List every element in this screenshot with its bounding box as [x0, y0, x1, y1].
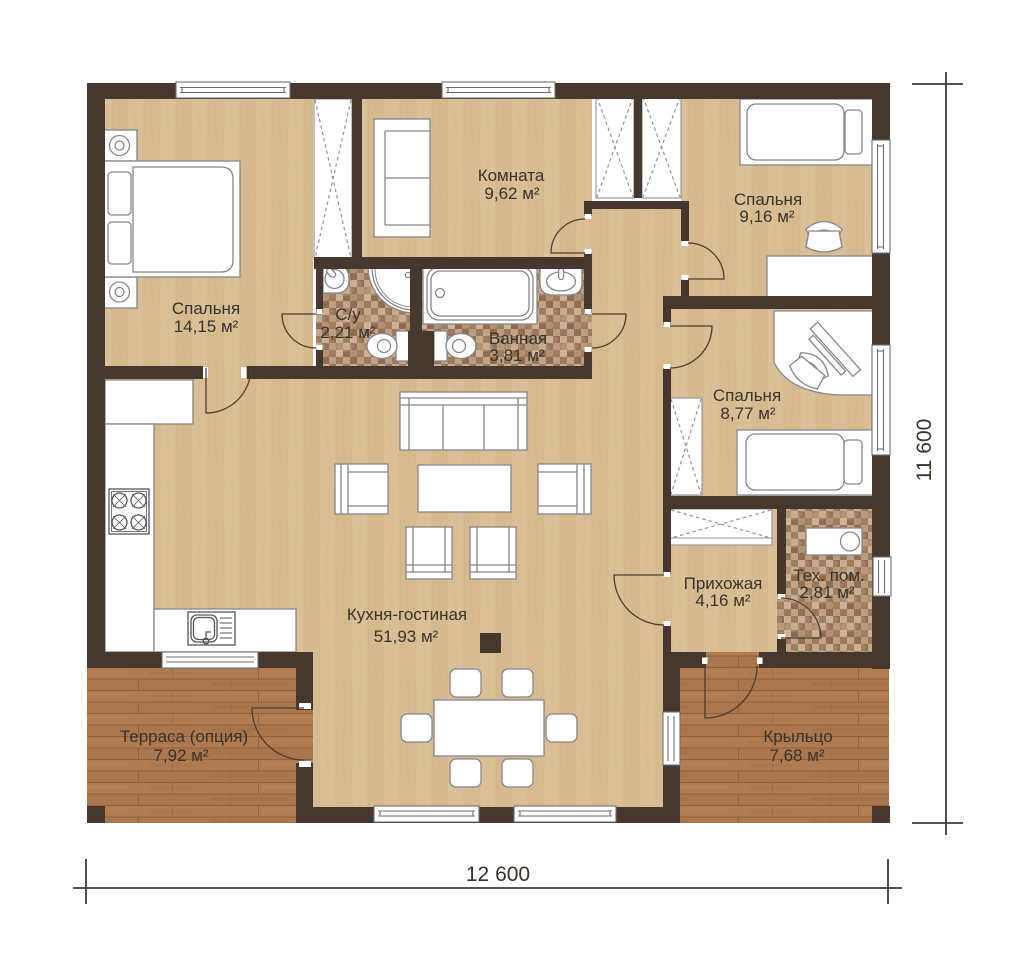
svg-text:Крыльцо: Крыльцо [763, 727, 832, 746]
svg-text:Спальня: Спальня [172, 299, 240, 318]
svg-text:7,68 м²: 7,68 м² [769, 746, 824, 765]
svg-text:14,15 м²: 14,15 м² [174, 317, 239, 336]
svg-text:51,93 м²: 51,93 м² [374, 627, 439, 646]
svg-text:4,16 м²: 4,16 м² [695, 591, 750, 610]
svg-text:8,77 м²: 8,77 м² [720, 404, 775, 423]
svg-text:12 600: 12 600 [466, 863, 530, 886]
svg-text:Терраса (опция): Терраса (опция) [120, 727, 248, 746]
svg-text:2,21 м²: 2,21 м² [320, 323, 375, 342]
svg-text:С/у: С/у [335, 305, 361, 324]
svg-text:Кухня-гостиная: Кухня-гостиная [347, 605, 467, 624]
svg-text:9,62 м²: 9,62 м² [484, 184, 539, 203]
svg-text:11 600: 11 600 [913, 419, 936, 482]
svg-text:9,16 м²: 9,16 м² [739, 207, 794, 226]
svg-text:Спальня: Спальня [713, 386, 781, 405]
svg-text:2,81 м²: 2,81 м² [799, 583, 854, 602]
svg-text:7,92 м²: 7,92 м² [153, 746, 208, 765]
svg-text:3,81 м²: 3,81 м² [489, 346, 544, 365]
svg-text:Комната: Комната [478, 166, 545, 185]
